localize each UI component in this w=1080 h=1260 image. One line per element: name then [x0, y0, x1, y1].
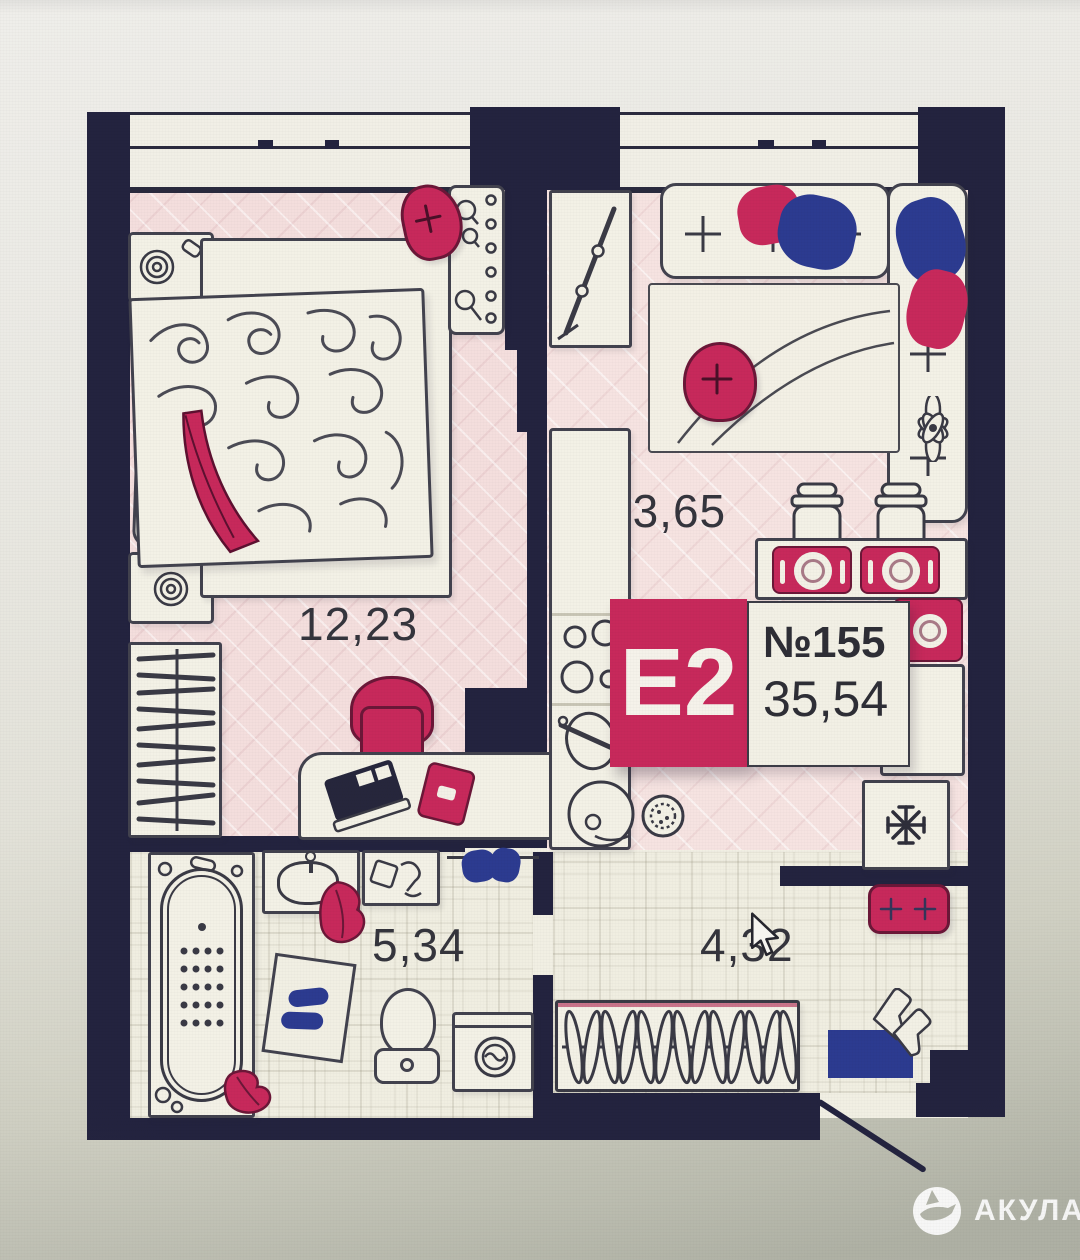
- plate-icon: [794, 552, 832, 590]
- washer-door-icon: [455, 1027, 531, 1089]
- shark-icon: [912, 1186, 962, 1236]
- laptop-icon: [320, 758, 410, 832]
- bathtub: [148, 852, 255, 1118]
- wardrobe-bedroom: [128, 642, 222, 838]
- fridge: [862, 780, 950, 870]
- blanket-swirl-pattern: [131, 291, 424, 559]
- wall-bath-hall-b: [533, 975, 553, 1118]
- plant-flower-icon: [903, 396, 963, 462]
- watermark: АКУЛА: [912, 1186, 1080, 1236]
- bed-blanket: [128, 288, 433, 568]
- placemat: [860, 546, 940, 594]
- bathroom-area-label: 5,34: [372, 918, 466, 972]
- lamp-spiral-icon: [131, 235, 211, 299]
- sink-tap-knob: [305, 851, 316, 862]
- wall-right: [968, 107, 1005, 1117]
- bedroom-window: [130, 112, 470, 193]
- hairdryer-icon: [365, 853, 437, 903]
- hangers-icon: [131, 645, 219, 835]
- pouf-tuft: [686, 345, 748, 413]
- cutlery-icon: [868, 560, 873, 584]
- towel-crimson-icon: [217, 1067, 277, 1119]
- wall-top-middle: [470, 107, 620, 190]
- toilet-bowl: [380, 988, 436, 1056]
- hangers-icon: [558, 1003, 797, 1089]
- wall-left: [87, 112, 130, 1140]
- wall-partition-step: [517, 350, 547, 432]
- slipper-icon: [281, 1011, 324, 1029]
- bath-mat: [261, 953, 356, 1063]
- boots-icon: [866, 988, 940, 1062]
- desk-items: [301, 755, 552, 837]
- unit-total-area: 35,54: [763, 671, 908, 729]
- sparkle-icon: [398, 183, 458, 256]
- plates-icon: [565, 778, 695, 850]
- unit-type-badge: Е2: [610, 599, 747, 767]
- placemat: [772, 546, 852, 594]
- wardrobe-top-strip: [558, 1003, 797, 1007]
- wall-entry-stub-h: [916, 1083, 968, 1117]
- wall-bottom-hall: [553, 1093, 820, 1140]
- cutlery-icon: [928, 560, 933, 584]
- desk: [298, 752, 555, 840]
- snowflake-icon: [884, 803, 928, 847]
- slipper-icon: [288, 987, 330, 1008]
- toilet: [372, 986, 442, 1086]
- watermark-label: АКУЛА: [974, 1194, 1080, 1228]
- wall-partition-thin: [527, 432, 547, 688]
- floor-plan: 12,23: [0, 0, 1080, 1260]
- window-sill: [130, 149, 470, 187]
- unit-info-card: №155 35,54: [747, 601, 910, 767]
- wardrobe-hallway: [555, 1000, 800, 1092]
- wall-bath-hall-a: [533, 852, 553, 915]
- plate-icon: [882, 552, 920, 590]
- unit-number: №155: [763, 619, 908, 667]
- pouf: [683, 342, 757, 422]
- notebook-icon: [417, 762, 475, 826]
- wall-bottom-bath: [87, 1118, 553, 1140]
- mouse-cursor-icon: [748, 912, 782, 958]
- burner: [913, 614, 947, 648]
- bedroom-area-label: 12,23: [298, 597, 418, 651]
- bench: [868, 884, 950, 934]
- floor-lamp-icon: [552, 193, 629, 345]
- cutlery-icon: [780, 560, 785, 584]
- window-sill: [620, 149, 918, 187]
- living-window: [620, 112, 918, 193]
- unit-type-label: Е2: [620, 628, 737, 738]
- wall-partition-upper: [505, 190, 547, 350]
- bench-tufts: [871, 887, 947, 931]
- console-panel: [549, 190, 632, 348]
- washing-machine: [452, 1012, 534, 1092]
- bathroom-cabinet: [362, 850, 440, 906]
- toilet-button: [400, 1058, 414, 1072]
- cutlery-icon: [840, 560, 845, 584]
